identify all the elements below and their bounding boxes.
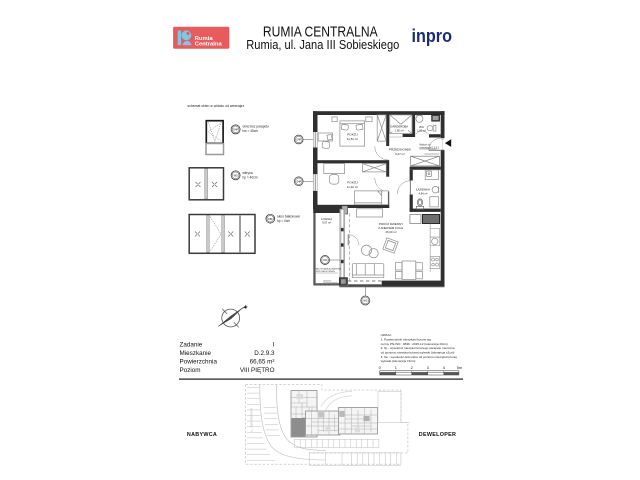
svg-text:1,80 m²: 1,80 m² xyxy=(395,129,404,133)
svg-text:I: I xyxy=(273,341,275,348)
svg-text:O4P: O4P xyxy=(296,139,301,142)
svg-text:W5: W5 xyxy=(363,299,368,303)
svg-text:inpro: inpro xyxy=(412,26,453,46)
svg-text:11,81 m²: 11,81 m² xyxy=(347,137,358,141)
svg-text:POKÓJ: POKÓJ xyxy=(347,132,358,137)
svg-text:Poziom: Poziom xyxy=(180,367,201,374)
svg-text:hp = 40cm: hp = 40cm xyxy=(243,175,258,179)
svg-text:D.2.9.3: D.2.9.3 xyxy=(254,350,275,357)
svg-text:26,00 m²: 26,00 m² xyxy=(385,230,396,234)
svg-text:LOGGIA: LOGGIA xyxy=(321,217,332,221)
svg-text:PRZEDSIONEK: PRZEDSIONEK xyxy=(389,148,412,152)
svg-text:Rumia, ul. Jana III Sobieskieg: Rumia, ul. Jana III Sobieskiego xyxy=(246,37,399,52)
svg-text:Wejście do: Wejście do xyxy=(419,145,431,147)
svg-text:O4P: O4P xyxy=(296,180,301,183)
svg-text:O6b: O6b xyxy=(268,217,273,221)
svg-text:NABYWCA: NABYWCA xyxy=(187,432,217,438)
svg-text:Centralna: Centralna xyxy=(195,42,223,48)
svg-text:DEWELOPER: DEWELOPER xyxy=(419,432,456,438)
svg-text:W5: W5 xyxy=(234,173,239,177)
svg-text:O6b: O6b xyxy=(323,259,328,262)
svg-text:66,65 m²: 66,65 m² xyxy=(250,358,275,365)
svg-text:WC: WC xyxy=(419,125,425,129)
svg-text:SZKLONA OD WEWN.: SZKLONA OD WEWN. xyxy=(316,270,336,273)
svg-text:GARDEROBA: GARDEROBA xyxy=(390,125,408,129)
svg-text:UWAGI:: UWAGI: xyxy=(381,333,392,337)
svg-text:Zadanie: Zadanie xyxy=(180,341,203,348)
svg-text:VIII PIĘTRO: VIII PIĘTRO xyxy=(240,367,275,374)
svg-text:O4P: O4P xyxy=(233,128,239,132)
svg-text:4: 4 xyxy=(443,365,446,370)
svg-text:1,80 m²: 1,80 m² xyxy=(417,129,426,133)
svg-text:5m: 5m xyxy=(457,365,462,370)
svg-text:POKÓJ: POKÓJ xyxy=(347,180,358,185)
svg-text:3: 3 xyxy=(427,365,429,370)
svg-text:0: 0 xyxy=(379,365,382,370)
svg-text:4,94 m²: 4,94 m² xyxy=(419,191,428,195)
svg-text:hp = 0cm: hp = 0cm xyxy=(277,219,291,223)
svg-text:9,07 m²: 9,07 m² xyxy=(322,221,331,225)
svg-text:hw = 45cm: hw = 45cm xyxy=(243,129,259,133)
svg-text:wylewki (tolerancja ±3cm): wylewki (tolerancja ±3cm) xyxy=(381,359,416,363)
svg-text:9,47 m²: 9,47 m² xyxy=(395,152,405,156)
svg-text:Mieszkanie: Mieszkanie xyxy=(180,350,212,357)
svg-text:2. hp - wysokość niewykończone: 2. hp - wysokość niewykończonego parapet… xyxy=(381,346,455,350)
svg-text:1: 1 xyxy=(395,365,397,370)
svg-text:2: 2 xyxy=(411,365,413,370)
svg-text:UL. DĄBROWSKIEGO: UL. DĄBROWSKIEGO xyxy=(251,408,254,432)
svg-text:11,40 m²: 11,40 m² xyxy=(347,185,358,189)
svg-text:Powierzchnia: Powierzchnia xyxy=(180,358,218,365)
svg-text:ŁAZIENKA: ŁAZIENKA xyxy=(416,187,430,191)
svg-text:schemat okien w widoku od wewn: schemat okien w widoku od wewnątrz xyxy=(188,104,245,108)
